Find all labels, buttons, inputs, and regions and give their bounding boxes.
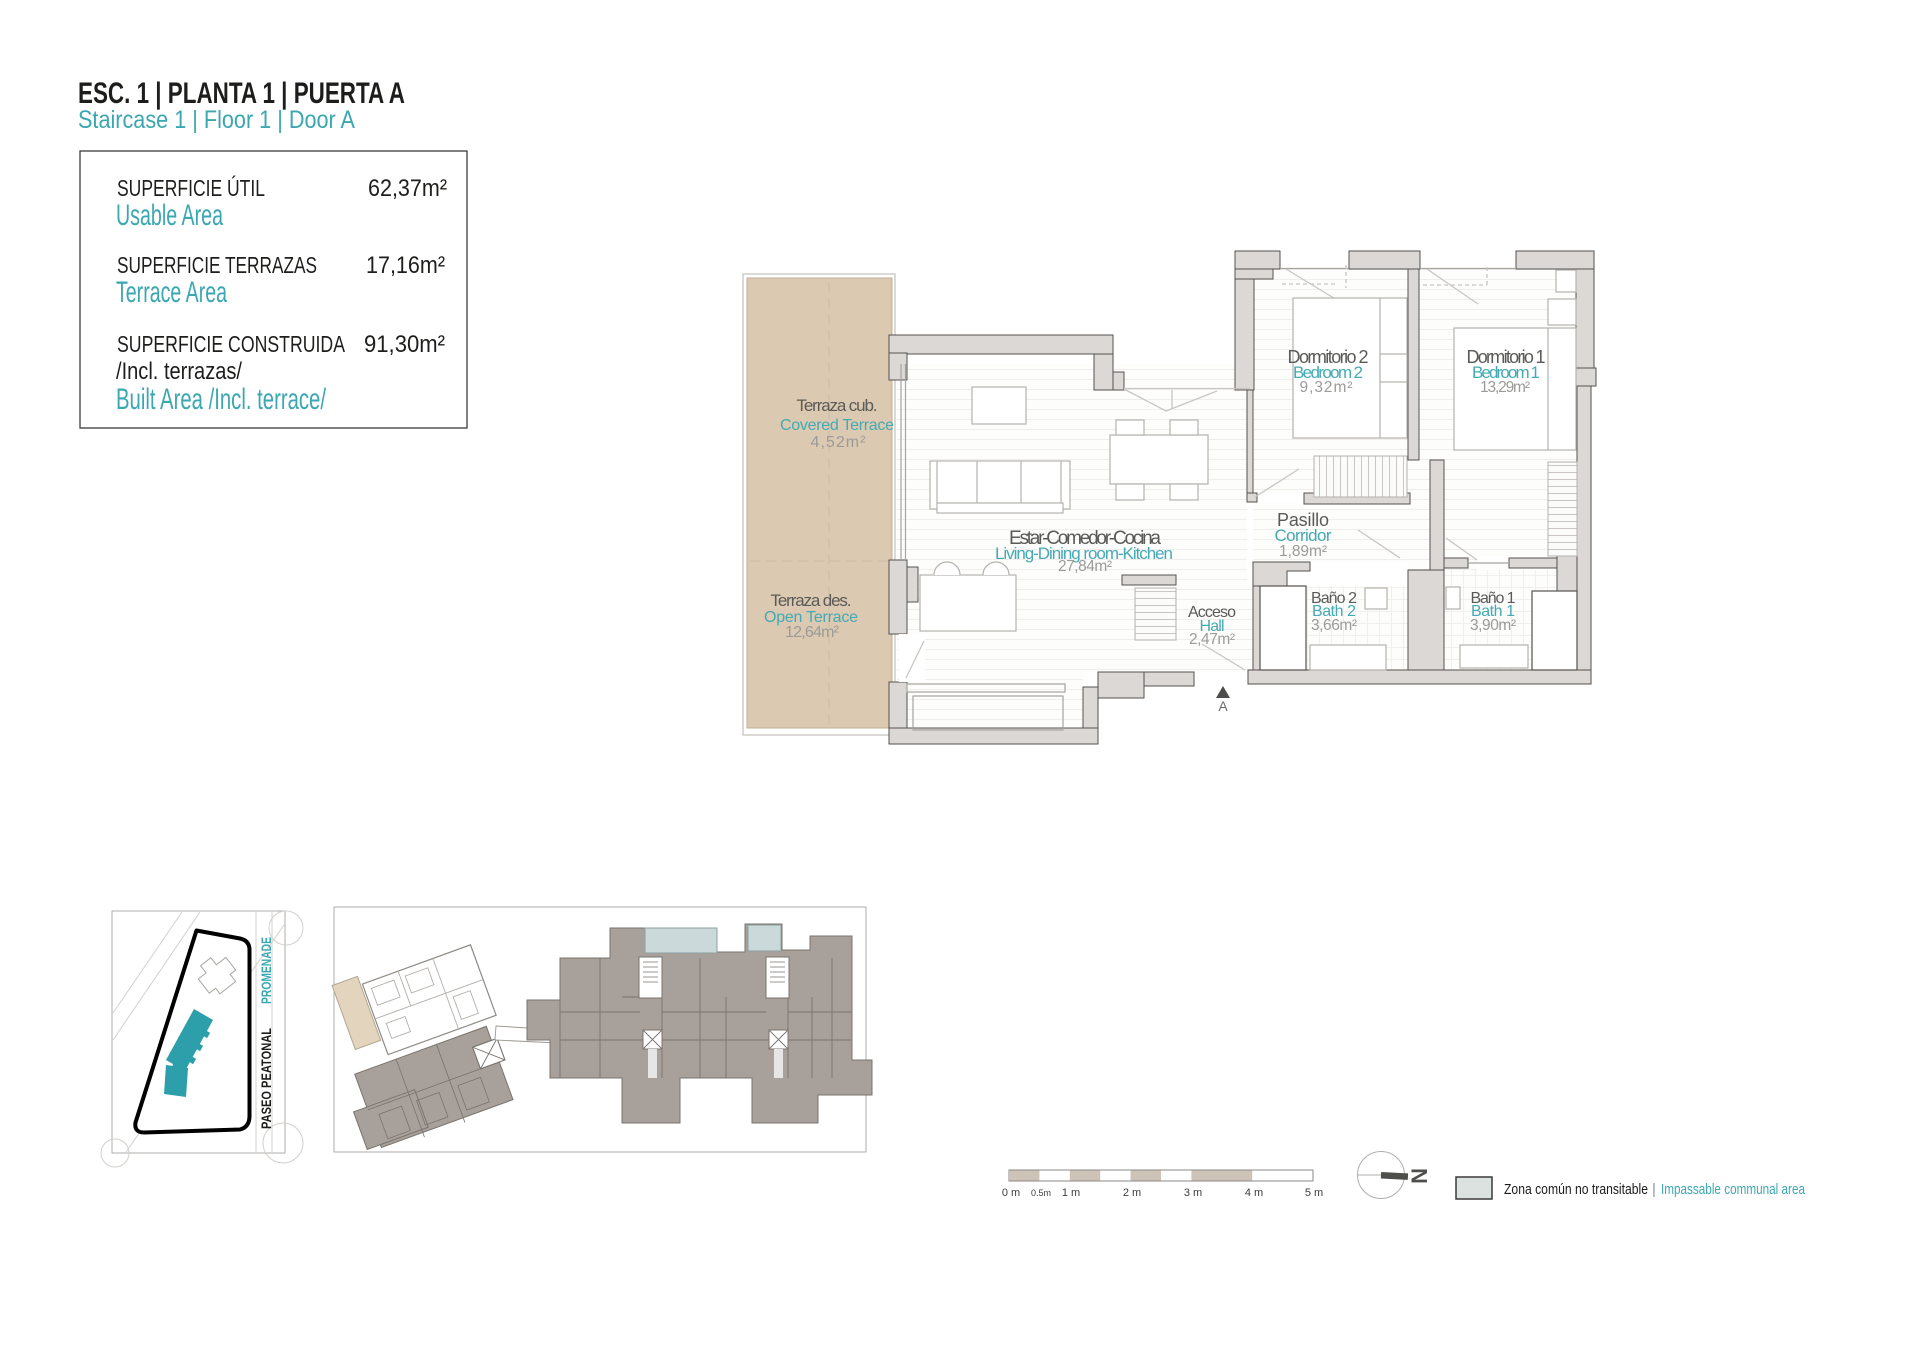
svg-text:12,64m²: 12,64m² (785, 624, 840, 641)
svg-text:0 m: 0 m (1002, 1187, 1020, 1199)
svg-text:4 m: 4 m (1245, 1187, 1263, 1199)
svg-text:Staircase 1 | Floor 1 | Door A: Staircase 1 | Floor 1 | Door A (78, 106, 355, 134)
svg-text:Terrace Area: Terrace Area (116, 276, 227, 309)
svg-text:PROMENADE: PROMENADE (258, 937, 274, 1004)
svg-text:1 m: 1 m (1062, 1187, 1080, 1199)
svg-text:5 m: 5 m (1305, 1187, 1323, 1199)
svg-text:2,47m²: 2,47m² (1189, 631, 1235, 648)
svg-text:1,89m²: 1,89m² (1279, 543, 1327, 560)
svg-text:9,32m²: 9,32m² (1300, 379, 1353, 396)
svg-text:Terraza cub.: Terraza cub. (797, 396, 878, 415)
svg-text:SUPERFICIE ÚTIL: SUPERFICIE ÚTIL (117, 175, 265, 201)
svg-text:N: N (1407, 1168, 1432, 1184)
svg-text:91,30m²: 91,30m² (364, 331, 445, 358)
svg-text:0.5m: 0.5m (1031, 1188, 1051, 1198)
svg-text:Impassable communal area: Impassable communal area (1661, 1181, 1806, 1198)
svg-text:13,29m²: 13,29m² (1480, 379, 1530, 396)
svg-text:3 m: 3 m (1184, 1187, 1202, 1199)
svg-text:|: | (1652, 1181, 1656, 1198)
svg-text:2 m: 2 m (1123, 1187, 1141, 1199)
svg-text:17,16m²: 17,16m² (366, 252, 445, 279)
svg-text:62,37m²: 62,37m² (368, 175, 447, 202)
svg-text:A: A (1218, 698, 1228, 714)
svg-text:SUPERFICIE TERRAZAS: SUPERFICIE TERRAZAS (117, 252, 317, 278)
svg-text:3,66m²: 3,66m² (1311, 617, 1357, 634)
svg-text:Built Area /Incl. terrace/: Built Area /Incl. terrace/ (116, 383, 326, 416)
svg-text:PASEO PEATONAL: PASEO PEATONAL (258, 1028, 274, 1129)
svg-text:Zona común no transitable: Zona común no transitable (1504, 1181, 1648, 1198)
svg-text:SUPERFICIE CONSTRUIDA: SUPERFICIE CONSTRUIDA (117, 331, 345, 357)
svg-text:Usable Area: Usable Area (116, 199, 223, 232)
svg-text:/Incl. terrazas/: /Incl. terrazas/ (116, 358, 242, 385)
svg-text:3,90m²: 3,90m² (1470, 617, 1516, 634)
svg-text:Covered Terrace: Covered Terrace (780, 417, 894, 434)
svg-text:27,84m²: 27,84m² (1058, 558, 1112, 575)
svg-text:4,52m²: 4,52m² (811, 434, 867, 451)
svg-text:Terraza des.: Terraza des. (771, 591, 852, 610)
